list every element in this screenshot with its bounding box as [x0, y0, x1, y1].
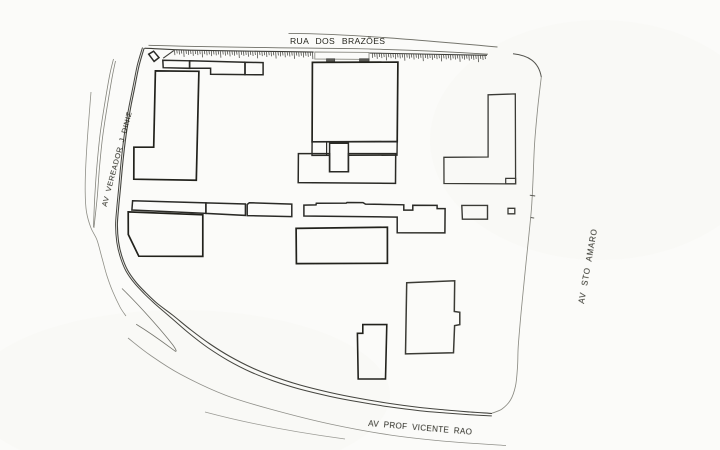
svg-text:RUA DOS BRAZÕES: RUA DOS BRAZÕES — [290, 36, 385, 46]
